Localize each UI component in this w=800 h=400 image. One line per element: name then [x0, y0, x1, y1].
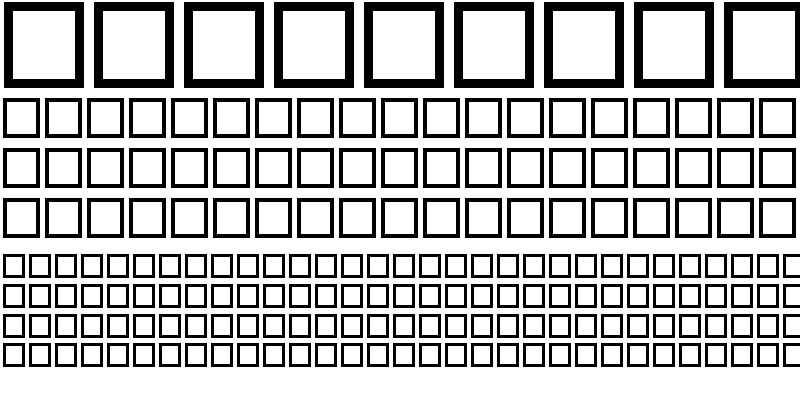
- notdef-glyph-box: [783, 284, 800, 308]
- glyph-sheet: [0, 0, 800, 400]
- notdef-glyph-box: [633, 198, 670, 238]
- notdef-glyph-box: [185, 343, 207, 367]
- notdef-glyph-box: [724, 2, 800, 88]
- notdef-glyph-box: [523, 254, 545, 278]
- notdef-glyph-box: [159, 254, 181, 278]
- notdef-glyph-box: [297, 148, 334, 188]
- notdef-glyph-box: [55, 314, 77, 338]
- notdef-glyph-box: [497, 254, 519, 278]
- notdef-glyph-box: [185, 284, 207, 308]
- notdef-glyph-box: [783, 254, 800, 278]
- notdef-glyph-box: [575, 284, 597, 308]
- notdef-glyph-box: [3, 314, 25, 338]
- notdef-glyph-box: [591, 198, 628, 238]
- notdef-glyph-box: [129, 148, 166, 188]
- notdef-glyph-box: [653, 254, 675, 278]
- notdef-glyph-box: [81, 284, 103, 308]
- notdef-glyph-box: [419, 254, 441, 278]
- notdef-glyph-box: [339, 198, 376, 238]
- notdef-glyph-box: [213, 148, 250, 188]
- notdef-glyph-box: [4, 2, 84, 88]
- notdef-glyph-box: [381, 148, 418, 188]
- notdef-glyph-box: [393, 254, 415, 278]
- notdef-glyph-box: [497, 343, 519, 367]
- notdef-glyph-box: [339, 98, 376, 138]
- notdef-glyph-box: [341, 314, 363, 338]
- notdef-glyph-box: [653, 314, 675, 338]
- notdef-glyph-box: [237, 254, 259, 278]
- notdef-glyph-box: [184, 2, 264, 88]
- notdef-glyph-box: [367, 254, 389, 278]
- notdef-glyph-box: [29, 314, 51, 338]
- notdef-glyph-box: [255, 98, 292, 138]
- notdef-glyph-box: [419, 314, 441, 338]
- notdef-glyph-box: [213, 98, 250, 138]
- notdef-glyph-box: [159, 343, 181, 367]
- notdef-glyph-box: [55, 284, 77, 308]
- notdef-glyph-box: [55, 254, 77, 278]
- notdef-glyph-box: [211, 254, 233, 278]
- medium-glyph-row: [3, 98, 796, 138]
- notdef-glyph-box: [445, 284, 467, 308]
- notdef-glyph-box: [627, 343, 649, 367]
- notdef-glyph-box: [341, 254, 363, 278]
- notdef-glyph-box: [367, 284, 389, 308]
- notdef-glyph-box: [129, 198, 166, 238]
- notdef-glyph-box: [45, 98, 82, 138]
- notdef-glyph-box: [679, 284, 701, 308]
- notdef-glyph-box: [454, 2, 534, 88]
- notdef-glyph-box: [601, 343, 623, 367]
- notdef-glyph-box: [107, 343, 129, 367]
- notdef-glyph-box: [3, 98, 40, 138]
- notdef-glyph-box: [107, 284, 129, 308]
- notdef-glyph-box: [627, 254, 649, 278]
- notdef-glyph-box: [393, 343, 415, 367]
- notdef-glyph-box: [627, 314, 649, 338]
- notdef-glyph-box: [549, 98, 586, 138]
- small-glyph-row: [3, 254, 800, 278]
- notdef-glyph-box: [523, 314, 545, 338]
- notdef-glyph-box: [315, 284, 337, 308]
- large-glyph-row: [4, 2, 800, 88]
- notdef-glyph-box: [759, 198, 796, 238]
- notdef-glyph-box: [653, 284, 675, 308]
- notdef-glyph-box: [185, 314, 207, 338]
- notdef-glyph-box: [3, 254, 25, 278]
- notdef-glyph-box: [171, 98, 208, 138]
- notdef-glyph-box: [393, 284, 415, 308]
- notdef-glyph-box: [445, 254, 467, 278]
- notdef-glyph-box: [471, 314, 493, 338]
- notdef-glyph-box: [87, 198, 124, 238]
- notdef-glyph-box: [575, 343, 597, 367]
- notdef-glyph-box: [274, 2, 354, 88]
- notdef-glyph-box: [423, 148, 460, 188]
- notdef-glyph-box: [675, 98, 712, 138]
- notdef-glyph-box: [705, 254, 727, 278]
- notdef-glyph-box: [81, 343, 103, 367]
- notdef-glyph-box: [315, 314, 337, 338]
- notdef-glyph-box: [471, 254, 493, 278]
- notdef-glyph-box: [633, 148, 670, 188]
- notdef-glyph-box: [679, 343, 701, 367]
- notdef-glyph-box: [507, 98, 544, 138]
- small-glyph-row: [3, 343, 800, 367]
- notdef-glyph-box: [549, 343, 571, 367]
- notdef-glyph-box: [757, 284, 779, 308]
- notdef-glyph-box: [381, 198, 418, 238]
- notdef-glyph-box: [107, 314, 129, 338]
- notdef-glyph-box: [297, 98, 334, 138]
- notdef-glyph-box: [717, 98, 754, 138]
- notdef-glyph-box: [731, 314, 753, 338]
- notdef-glyph-box: [211, 314, 233, 338]
- notdef-glyph-box: [507, 148, 544, 188]
- notdef-glyph-box: [423, 98, 460, 138]
- notdef-glyph-box: [364, 2, 444, 88]
- notdef-glyph-box: [549, 198, 586, 238]
- notdef-glyph-box: [549, 148, 586, 188]
- notdef-glyph-box: [544, 2, 624, 88]
- notdef-glyph-box: [159, 284, 181, 308]
- notdef-glyph-box: [497, 284, 519, 308]
- small-glyph-row: [3, 284, 800, 308]
- notdef-glyph-box: [471, 284, 493, 308]
- notdef-glyph-box: [675, 198, 712, 238]
- medium-glyph-section: [3, 98, 796, 238]
- notdef-glyph-box: [601, 254, 623, 278]
- notdef-glyph-box: [367, 314, 389, 338]
- notdef-glyph-box: [575, 314, 597, 338]
- notdef-glyph-box: [419, 284, 441, 308]
- notdef-glyph-box: [423, 198, 460, 238]
- notdef-glyph-box: [159, 314, 181, 338]
- notdef-glyph-box: [29, 284, 51, 308]
- notdef-glyph-box: [263, 254, 285, 278]
- notdef-glyph-box: [497, 314, 519, 338]
- notdef-glyph-box: [653, 343, 675, 367]
- notdef-glyph-box: [237, 314, 259, 338]
- notdef-glyph-box: [341, 343, 363, 367]
- notdef-glyph-box: [634, 2, 714, 88]
- notdef-glyph-box: [185, 254, 207, 278]
- notdef-glyph-box: [549, 314, 571, 338]
- notdef-glyph-box: [315, 343, 337, 367]
- notdef-glyph-box: [601, 314, 623, 338]
- notdef-glyph-box: [705, 314, 727, 338]
- notdef-glyph-box: [601, 284, 623, 308]
- notdef-glyph-box: [3, 198, 40, 238]
- notdef-glyph-box: [341, 284, 363, 308]
- notdef-glyph-box: [29, 343, 51, 367]
- notdef-glyph-box: [29, 254, 51, 278]
- notdef-glyph-box: [289, 284, 311, 308]
- notdef-glyph-box: [419, 343, 441, 367]
- notdef-glyph-box: [263, 314, 285, 338]
- medium-glyph-row: [3, 148, 796, 188]
- small-glyph-row: [3, 314, 800, 338]
- notdef-glyph-box: [81, 314, 103, 338]
- notdef-glyph-box: [731, 284, 753, 308]
- notdef-glyph-box: [255, 198, 292, 238]
- notdef-glyph-box: [263, 343, 285, 367]
- notdef-glyph-box: [465, 198, 502, 238]
- notdef-glyph-box: [45, 148, 82, 188]
- notdef-glyph-box: [465, 98, 502, 138]
- notdef-glyph-box: [523, 284, 545, 308]
- notdef-glyph-box: [627, 284, 649, 308]
- notdef-glyph-box: [471, 343, 493, 367]
- medium-glyph-row: [3, 198, 796, 238]
- notdef-glyph-box: [133, 284, 155, 308]
- notdef-glyph-box: [705, 284, 727, 308]
- notdef-glyph-box: [133, 254, 155, 278]
- notdef-glyph-box: [297, 198, 334, 238]
- notdef-glyph-box: [133, 343, 155, 367]
- notdef-glyph-box: [717, 148, 754, 188]
- notdef-glyph-box: [171, 198, 208, 238]
- notdef-glyph-box: [783, 343, 800, 367]
- notdef-glyph-box: [94, 2, 174, 88]
- notdef-glyph-box: [87, 148, 124, 188]
- notdef-glyph-box: [717, 198, 754, 238]
- notdef-glyph-box: [339, 148, 376, 188]
- notdef-glyph-box: [263, 284, 285, 308]
- notdef-glyph-box: [367, 343, 389, 367]
- notdef-glyph-box: [289, 314, 311, 338]
- notdef-glyph-box: [237, 284, 259, 308]
- notdef-glyph-box: [633, 98, 670, 138]
- notdef-glyph-box: [679, 314, 701, 338]
- small-glyph-section: [3, 254, 800, 367]
- notdef-glyph-box: [731, 254, 753, 278]
- notdef-glyph-box: [445, 314, 467, 338]
- notdef-glyph-box: [705, 343, 727, 367]
- notdef-glyph-box: [171, 148, 208, 188]
- notdef-glyph-box: [211, 284, 233, 308]
- notdef-glyph-box: [523, 343, 545, 367]
- notdef-glyph-box: [393, 314, 415, 338]
- notdef-glyph-box: [731, 343, 753, 367]
- notdef-glyph-box: [315, 254, 337, 278]
- notdef-glyph-box: [213, 198, 250, 238]
- notdef-glyph-box: [575, 254, 597, 278]
- notdef-glyph-box: [129, 98, 166, 138]
- notdef-glyph-box: [289, 343, 311, 367]
- notdef-glyph-box: [757, 343, 779, 367]
- notdef-glyph-box: [783, 314, 800, 338]
- notdef-glyph-box: [591, 98, 628, 138]
- notdef-glyph-box: [675, 148, 712, 188]
- notdef-glyph-box: [133, 314, 155, 338]
- notdef-glyph-box: [107, 254, 129, 278]
- notdef-glyph-box: [757, 254, 779, 278]
- notdef-glyph-box: [465, 148, 502, 188]
- notdef-glyph-box: [81, 254, 103, 278]
- notdef-glyph-box: [381, 98, 418, 138]
- notdef-glyph-box: [507, 198, 544, 238]
- notdef-glyph-box: [3, 343, 25, 367]
- notdef-glyph-box: [759, 148, 796, 188]
- large-glyph-section: [4, 2, 800, 88]
- notdef-glyph-box: [591, 148, 628, 188]
- notdef-glyph-box: [679, 254, 701, 278]
- notdef-glyph-box: [3, 148, 40, 188]
- notdef-glyph-box: [445, 343, 467, 367]
- notdef-glyph-box: [759, 98, 796, 138]
- notdef-glyph-box: [3, 284, 25, 308]
- notdef-glyph-box: [237, 343, 259, 367]
- notdef-glyph-box: [45, 198, 82, 238]
- notdef-glyph-box: [211, 343, 233, 367]
- notdef-glyph-box: [549, 284, 571, 308]
- notdef-glyph-box: [55, 343, 77, 367]
- notdef-glyph-box: [757, 314, 779, 338]
- notdef-glyph-box: [87, 98, 124, 138]
- notdef-glyph-box: [255, 148, 292, 188]
- notdef-glyph-box: [289, 254, 311, 278]
- notdef-glyph-box: [549, 254, 571, 278]
